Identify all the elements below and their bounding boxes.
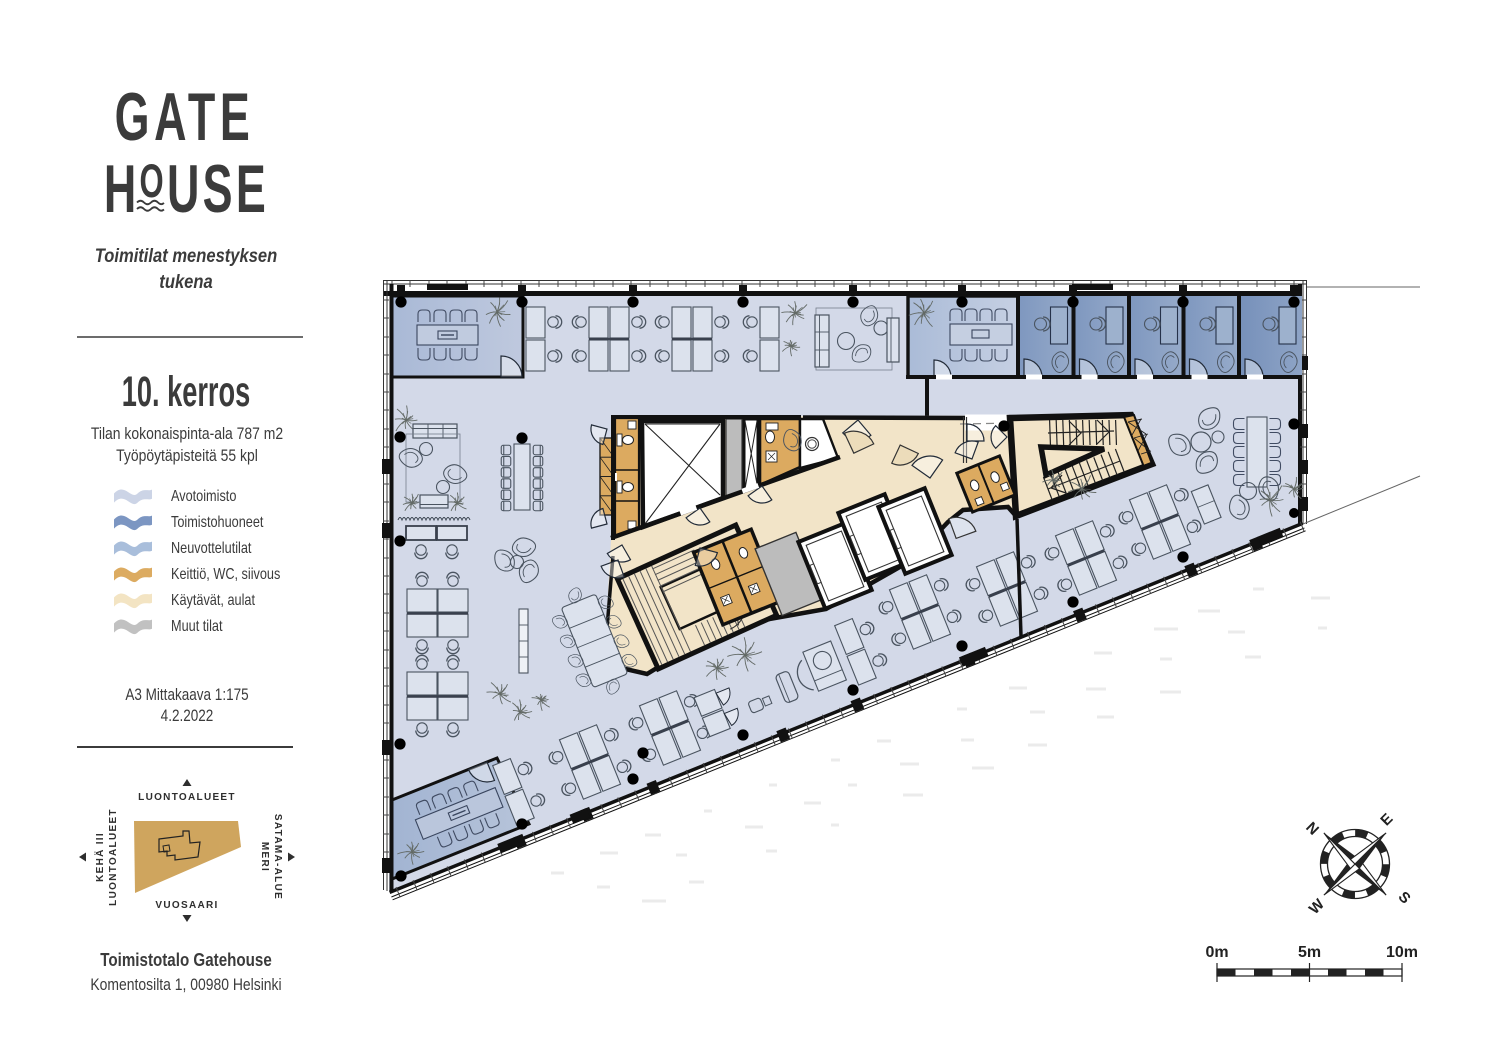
svg-text:0m: 0m <box>1205 944 1228 961</box>
svg-text:A3 Mittakaava 1:175: A3 Mittakaava 1:175 <box>125 686 248 705</box>
svg-text:Avotoimisto: Avotoimisto <box>171 488 236 505</box>
svg-text:tukena: tukena <box>159 271 212 293</box>
svg-text:LUONTOALUEET: LUONTOALUEET <box>108 808 119 906</box>
svg-text:VUOSAARI: VUOSAARI <box>155 900 218 911</box>
svg-text:Toimistohuoneet: Toimistohuoneet <box>171 514 264 531</box>
svg-text:Käytävät, aulat: Käytävät, aulat <box>171 592 255 609</box>
svg-text:GATE: GATE <box>115 80 255 156</box>
svg-text:Tilan kokonaispinta-ala 787 m2: Tilan kokonaispinta-ala 787 m2 <box>91 425 283 444</box>
svg-text:MERI: MERI <box>259 842 270 872</box>
svg-text:10m: 10m <box>1386 944 1418 961</box>
svg-text:Komentosilta 1, 00980 Helsinki: Komentosilta 1, 00980 Helsinki <box>90 976 281 995</box>
svg-text:4.2.2022: 4.2.2022 <box>161 707 214 726</box>
svg-text:Muut tilat: Muut tilat <box>171 618 223 635</box>
svg-text:SATAMA-ALUE: SATAMA-ALUE <box>272 814 283 900</box>
svg-text:10. kerros: 10. kerros <box>122 368 250 416</box>
svg-text:Työpöytäpisteitä 55 kpl: Työpöytäpisteitä 55 kpl <box>116 447 258 466</box>
svg-text:KEHÄ III: KEHÄ III <box>93 832 106 882</box>
svg-text:LUONTOALUEET: LUONTOALUEET <box>138 792 236 803</box>
svg-text:Neuvottelutilat: Neuvottelutilat <box>171 540 252 557</box>
svg-text:5m: 5m <box>1298 944 1321 961</box>
svg-text:Toimistotalo Gatehouse: Toimistotalo Gatehouse <box>100 950 272 971</box>
svg-text:Toimitilat menestyksen: Toimitilat menestyksen <box>95 245 278 267</box>
svg-text:Keittiö, WC, siivous: Keittiö, WC, siivous <box>171 566 280 583</box>
svg-text:HOUSE: HOUSE <box>104 152 269 228</box>
